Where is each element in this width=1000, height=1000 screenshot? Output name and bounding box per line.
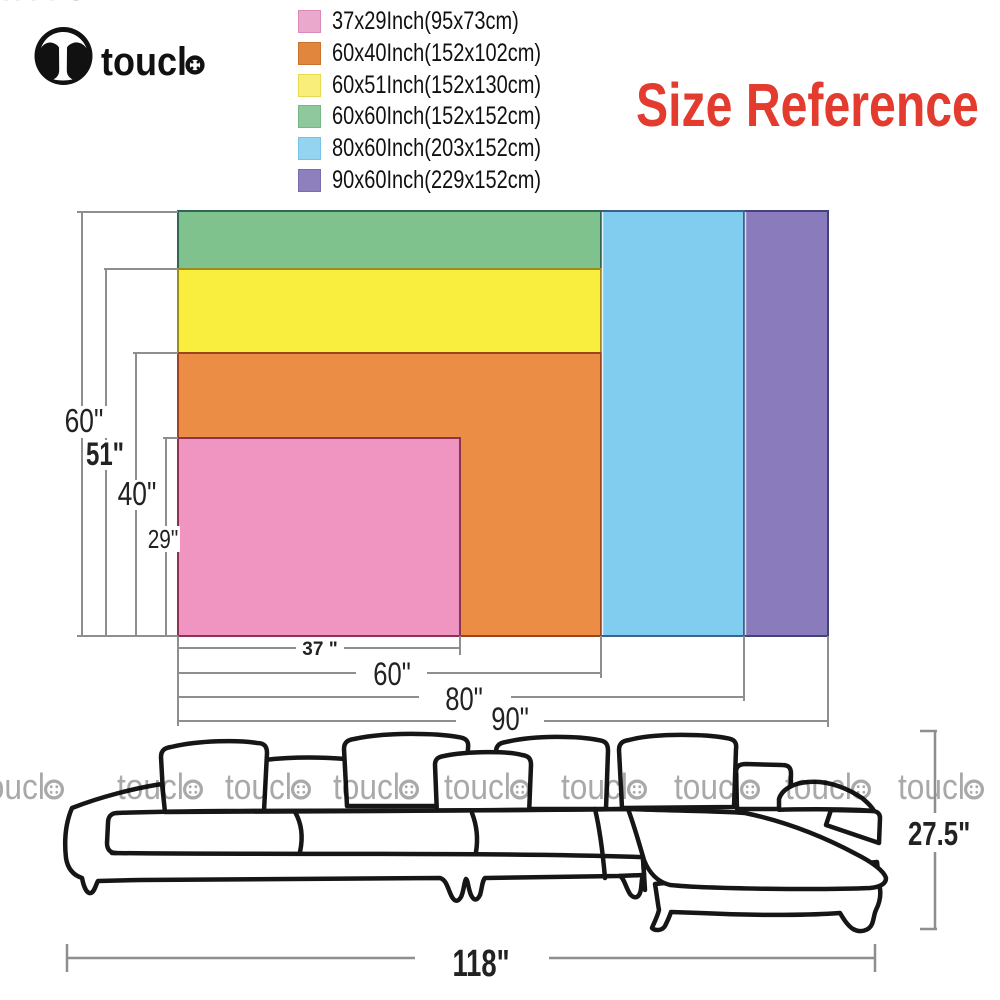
svg-text:27.5": 27.5" bbox=[908, 816, 970, 853]
svg-text:toucl: toucl bbox=[0, 0, 67, 8]
svg-text:118": 118" bbox=[452, 943, 509, 985]
